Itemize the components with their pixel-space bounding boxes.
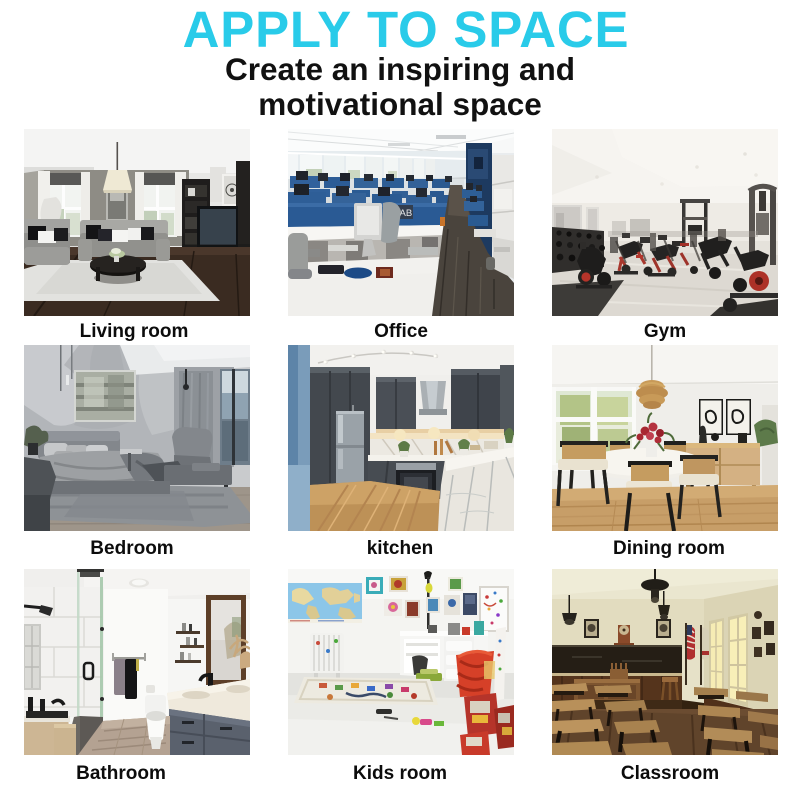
svg-text:AB: AB bbox=[400, 208, 413, 219]
